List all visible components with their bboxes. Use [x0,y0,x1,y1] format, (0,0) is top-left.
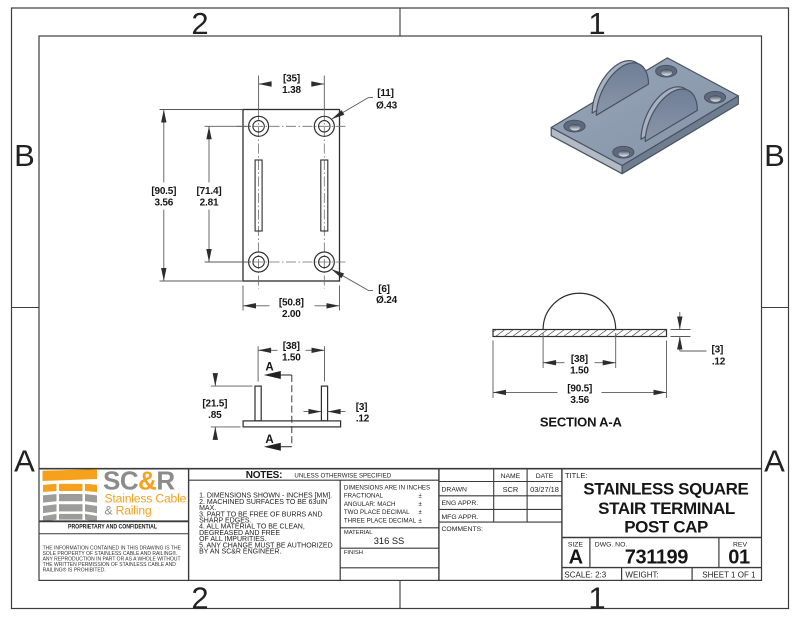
svg-text:NOTES:: NOTES: [246,470,283,481]
svg-text:.85: .85 [208,410,222,421]
svg-text:BY AN SC&R ENGINEER.: BY AN SC&R ENGINEER. [199,549,281,556]
svg-text:2.00: 2.00 [282,309,301,320]
svg-text:.12: .12 [712,357,726,368]
svg-text:ENG APPR.: ENG APPR. [442,500,479,507]
svg-text:[3]: [3] [356,402,368,413]
svg-text:ANGULAR: MACH: ANGULAR: MACH [344,501,396,508]
svg-text:03/27/18: 03/27/18 [530,485,559,494]
svg-text:A: A [764,444,785,479]
svg-text:& Railing: & Railing [105,504,152,518]
svg-text:A: A [14,444,35,479]
svg-text:[90.5]: [90.5] [567,384,592,395]
svg-text:DWG. NO.: DWG. NO. [595,541,628,548]
svg-text:[6]: [6] [378,284,390,295]
svg-text:MATERIAL: MATERIAL [344,530,373,536]
svg-text:RAILING® IS PROHIBITED.: RAILING® IS PROHIBITED. [43,567,106,574]
svg-text:WEIGHT:: WEIGHT: [625,571,658,580]
svg-text:[50.8]: [50.8] [279,297,304,308]
svg-text:STAIR TERMINAL: STAIR TERMINAL [598,499,735,518]
svg-text:3.56: 3.56 [154,198,173,209]
svg-text:2: 2 [191,6,208,41]
svg-text:PROPRIETARY AND CONFIDENTIAL: PROPRIETARY AND CONFIDENTIAL [68,524,157,531]
svg-text:[3]: [3] [711,345,723,356]
svg-text:[11]: [11] [377,88,393,99]
svg-text:A: A [569,546,583,568]
svg-text:THREE PLACE DECIMAL: THREE PLACE DECIMAL [344,518,417,525]
svg-text:DATE: DATE [536,473,554,480]
svg-text:Ø.24: Ø.24 [376,295,398,306]
svg-text:NAME: NAME [501,473,521,480]
svg-text:[71.4]: [71.4] [197,186,222,197]
svg-text:2: 2 [191,581,208,616]
svg-text:SHEET 1 OF 1: SHEET 1 OF 1 [702,571,756,580]
svg-text:DRAWN: DRAWN [442,487,468,494]
svg-text:B: B [14,138,35,173]
svg-text:A: A [265,434,273,446]
svg-text:DIMENSIONS ARE IN INCHES: DIMENSIONS ARE IN INCHES [344,484,430,491]
svg-text:1: 1 [588,6,605,41]
svg-text:A: A [265,361,273,373]
svg-text:SECTION A-A: SECTION A-A [540,415,623,430]
svg-text:Ø.43: Ø.43 [376,101,398,112]
svg-text:.12: .12 [356,413,370,424]
svg-text:1.50: 1.50 [570,365,589,376]
svg-text:1.50: 1.50 [282,353,301,364]
svg-text:TWO PLACE DECIMAL: TWO PLACE DECIMAL [344,509,410,516]
svg-text:FRACTIONAL: FRACTIONAL [344,493,384,500]
svg-text:01: 01 [728,546,750,568]
svg-text:SCR: SCR [503,485,519,494]
svg-text:SCALE: 2:3: SCALE: 2:3 [564,571,606,580]
svg-text:MFG APPR.: MFG APPR. [442,514,479,521]
svg-text:1: 1 [588,581,605,616]
svg-text:316 SS: 316 SS [374,536,405,546]
svg-text:[35]: [35] [283,74,300,85]
svg-text:FINISH: FINISH [344,550,363,556]
svg-text:[38]: [38] [283,341,300,352]
svg-text:[90.5]: [90.5] [151,186,176,197]
svg-text:3.56: 3.56 [570,395,589,406]
svg-text:2. MACHINED SURFACES TO BE 63u: 2. MACHINED SURFACES TO BE 63uIN [199,499,327,506]
svg-text:2.81: 2.81 [200,198,219,209]
svg-text:[38]: [38] [571,354,588,365]
svg-text:[21.5]: [21.5] [202,399,227,410]
svg-text:STAINLESS SQUARE: STAINLESS SQUARE [583,479,748,498]
svg-text:POST CAP: POST CAP [624,518,708,537]
svg-text:731199: 731199 [625,546,689,568]
svg-text:UNLESS OTHERWISE SPECIFIED: UNLESS OTHERWISE SPECIFIED [294,472,391,479]
svg-text:COMMENTS:: COMMENTS: [442,526,484,533]
svg-text:1.38: 1.38 [282,85,301,96]
svg-text:B: B [764,138,785,173]
